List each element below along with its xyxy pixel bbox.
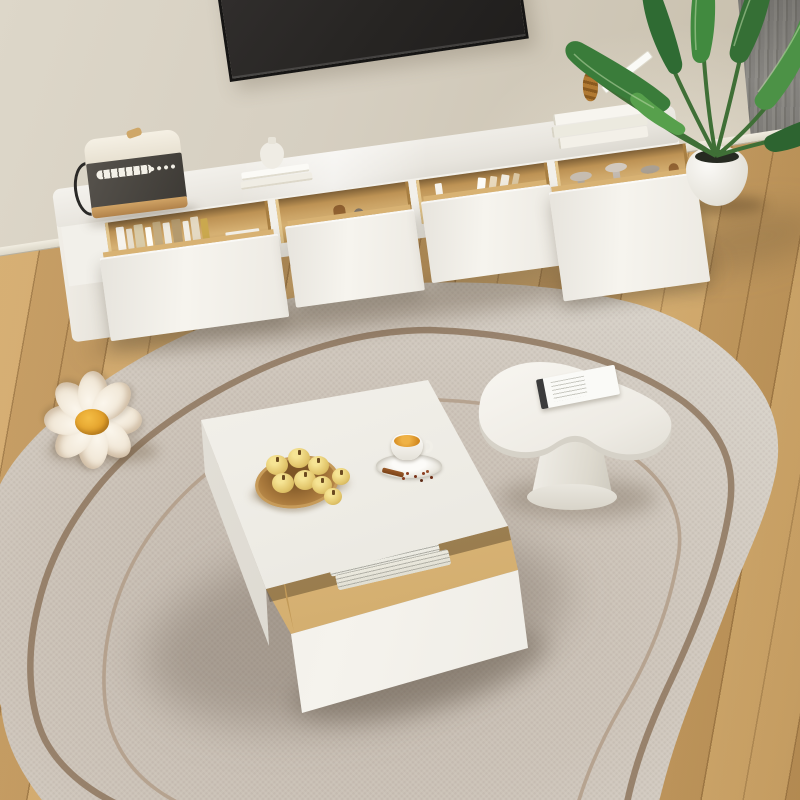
side-table-foot [527, 484, 617, 510]
spice-specks [406, 472, 409, 475]
plant-leaves [534, 0, 800, 314]
apple [266, 455, 288, 475]
apple [288, 448, 310, 468]
apple-loose [324, 488, 342, 505]
retro-radio [81, 128, 193, 226]
living-room-scene [0, 0, 800, 800]
book-cover-text-lines [551, 376, 588, 402]
side-table-top [470, 350, 680, 470]
apple-loose [332, 468, 350, 485]
teacup-set [372, 430, 456, 486]
apple [272, 473, 294, 493]
flower-center [75, 409, 109, 435]
drawer-front [285, 209, 425, 308]
radio-knob-dots [149, 163, 177, 172]
flower-cushion [28, 372, 158, 472]
tea-liquid [394, 435, 420, 447]
radio-dial [96, 164, 153, 180]
